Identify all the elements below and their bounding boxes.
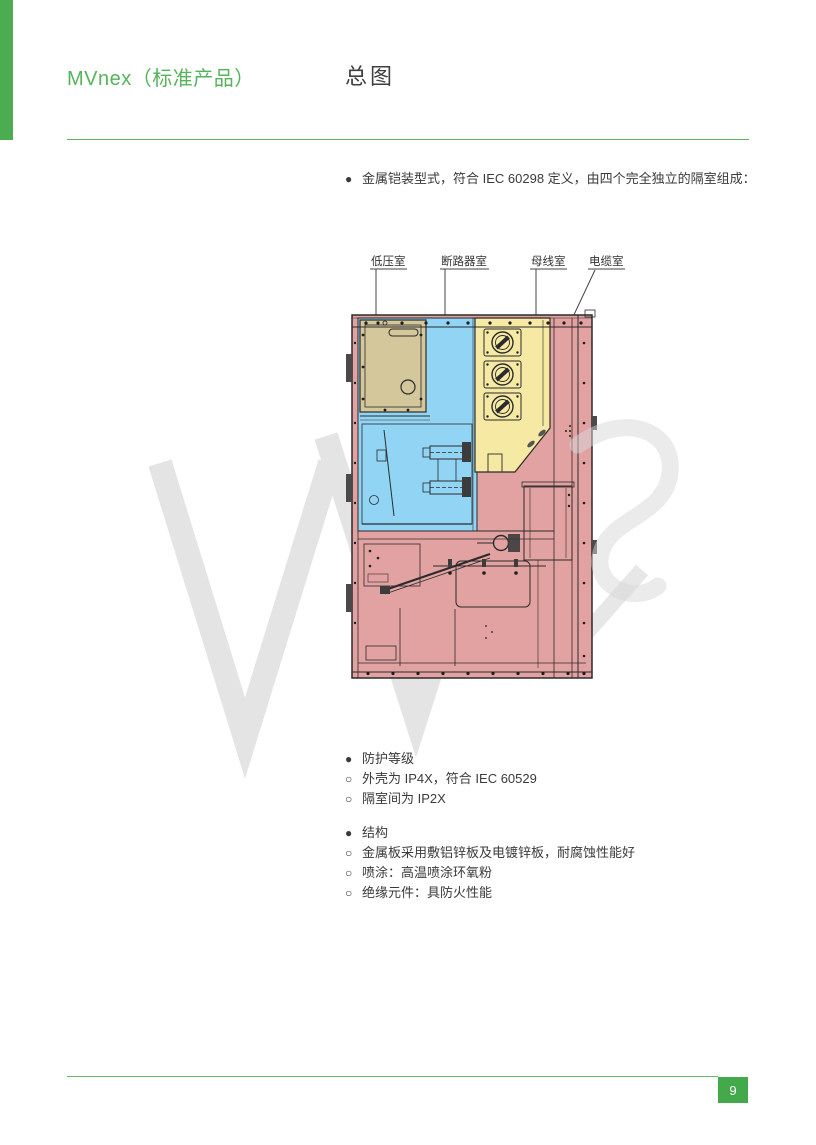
- page-number-badge: 9: [718, 1077, 748, 1103]
- bullet-open-icon: ○: [345, 769, 362, 789]
- list-item: ○ 外壳为 IP4X，符合 IEC 60529: [345, 769, 805, 789]
- list-item: ○ 喷涂：高温喷涂环氧粉: [345, 863, 805, 883]
- bullet-open-icon: ○: [345, 789, 362, 809]
- list-item-text: 金属板采用敷铝锌板及电镀锌板，耐腐蚀性能好: [362, 843, 635, 863]
- header-divider: [67, 139, 749, 140]
- list-item: ○ 隔室间为 IP2X: [345, 789, 805, 809]
- list-item-text: 绝缘元件：具防火性能: [362, 883, 492, 903]
- section-header-text: 防护等级: [362, 749, 414, 769]
- page-title: 总图: [345, 59, 395, 91]
- section-protection: ● 防护等级 ○ 外壳为 IP4X，符合 IEC 60529 ○ 隔室间为 IP…: [345, 749, 805, 809]
- intro-bullet-line: ● 金属铠装型式，符合 IEC 60298 定义，由四个完全独立的隔室组成：: [345, 169, 815, 189]
- label-cable-compartment: 电缆室: [589, 254, 624, 268]
- footer-divider: [67, 1076, 718, 1077]
- product-title: MVnex（标准产品）: [67, 62, 255, 91]
- section-structure: ● 结构 ○ 金属板采用敷铝锌板及电镀锌板，耐腐蚀性能好 ○ 喷涂：高温喷涂环氧…: [345, 823, 805, 903]
- catalog-page: MVnex（标准产品） 总图 ● 金属铠装型式，符合 IEC 60298 定义，…: [0, 0, 816, 1145]
- section-header: ● 结构: [345, 823, 805, 843]
- label-low-voltage-compartment: 低压室: [371, 254, 406, 268]
- bullet-filled-icon: ●: [345, 823, 362, 843]
- left-accent-bar: [0, 0, 13, 140]
- intro-text: 金属铠装型式，符合 IEC 60298 定义，由四个完全独立的隔室组成：: [362, 169, 756, 189]
- region-low-voltage-compartment: [360, 320, 426, 412]
- list-item-text: 外壳为 IP4X，符合 IEC 60529: [362, 769, 537, 789]
- list-item-text: 喷涂：高温喷涂环氧粉: [362, 863, 492, 883]
- bullet-filled-icon: ●: [345, 749, 362, 769]
- watermark-curve: [560, 400, 700, 660]
- list-item: ○ 绝缘元件：具防火性能: [345, 883, 805, 903]
- section-header: ● 防护等级: [345, 749, 805, 769]
- bullet-open-icon: ○: [345, 883, 362, 903]
- bullet-open-icon: ○: [345, 843, 362, 863]
- label-breaker-compartment: 断路器室: [441, 254, 487, 268]
- label-busbar-compartment: 母线室: [531, 254, 566, 268]
- list-item: ○ 金属板采用敷铝锌板及电镀锌板，耐腐蚀性能好: [345, 843, 805, 863]
- bullet-filled-icon: ●: [345, 169, 362, 189]
- section-header-text: 结构: [362, 823, 388, 843]
- spec-lists: ● 防护等级 ○ 外壳为 IP4X，符合 IEC 60529 ○ 隔室间为 IP…: [345, 749, 805, 903]
- list-item-text: 隔室间为 IP2X: [362, 789, 446, 809]
- bullet-open-icon: ○: [345, 863, 362, 883]
